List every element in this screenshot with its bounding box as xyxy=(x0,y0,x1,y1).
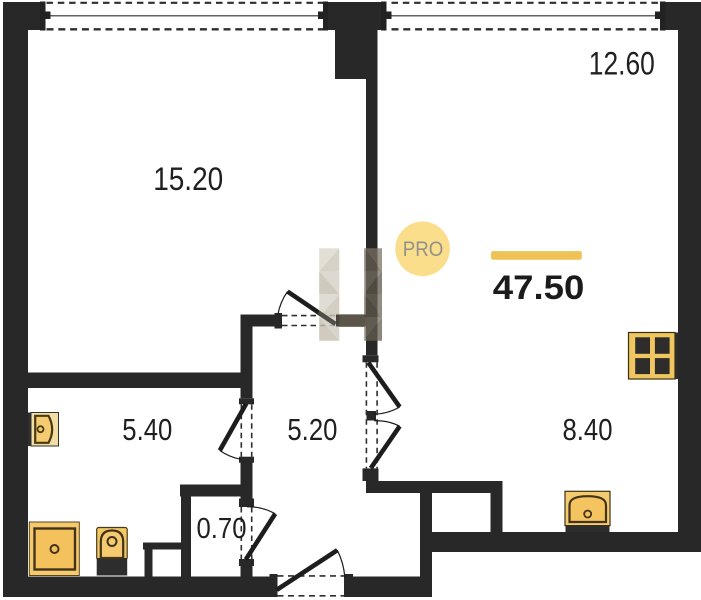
svg-text:PRO: PRO xyxy=(403,238,444,261)
svg-text:0.70: 0.70 xyxy=(197,513,247,545)
svg-text:5.20: 5.20 xyxy=(287,412,337,447)
svg-text:47.50: 47.50 xyxy=(493,269,585,307)
svg-text:5.40: 5.40 xyxy=(122,412,172,447)
svg-text:12.60: 12.60 xyxy=(589,46,655,82)
svg-text:8.40: 8.40 xyxy=(563,412,613,447)
svg-text:15.20: 15.20 xyxy=(153,161,223,197)
